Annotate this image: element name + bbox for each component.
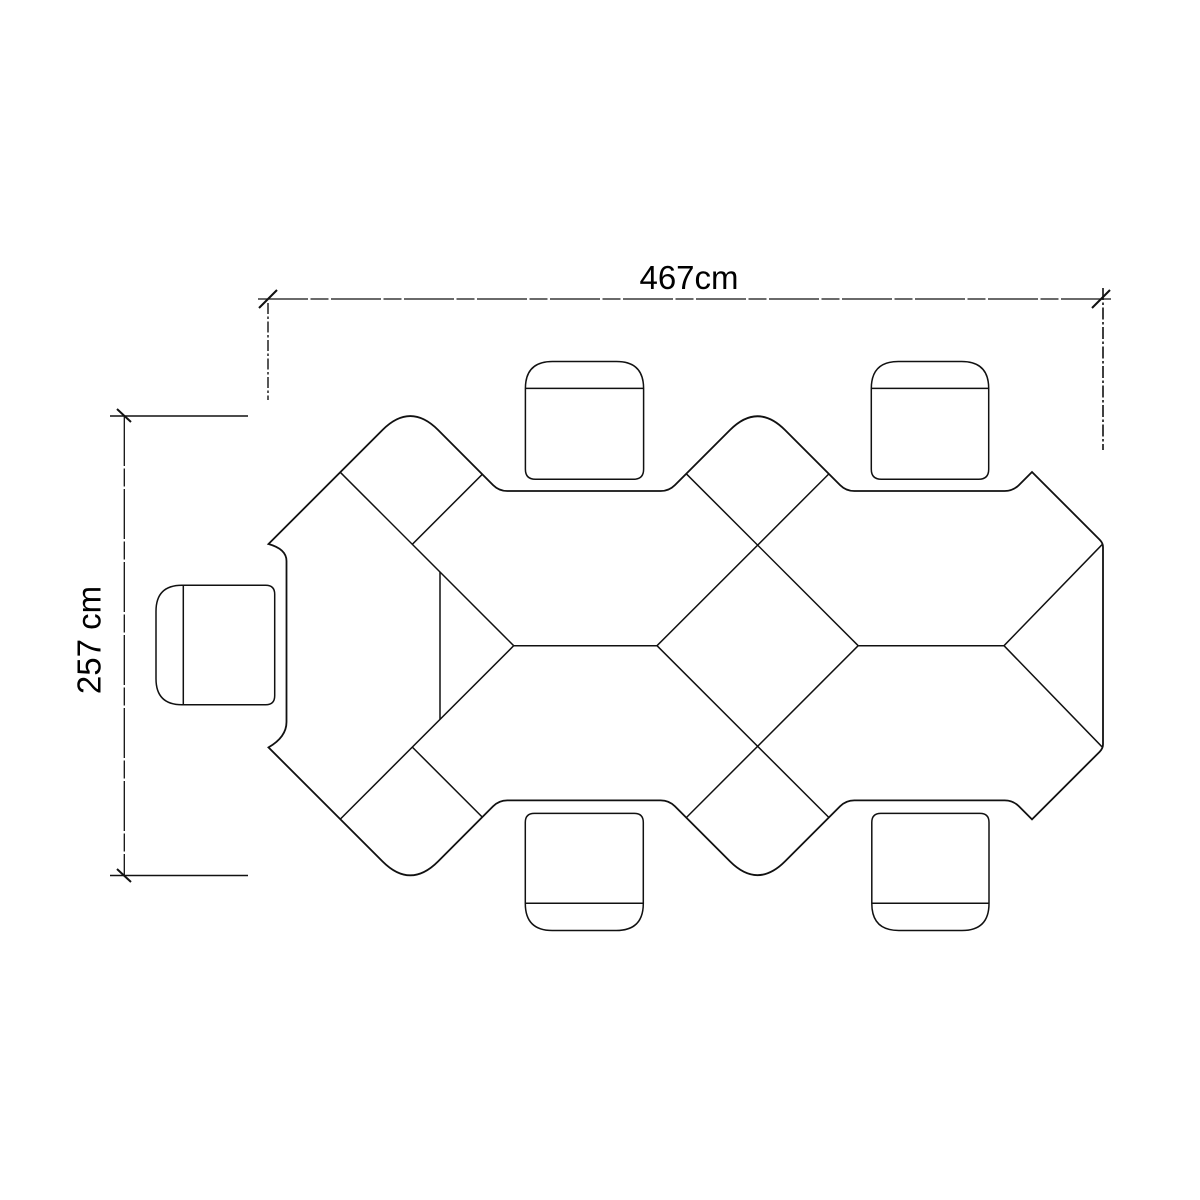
svg-text:257 cm: 257 cm — [71, 586, 108, 694]
svg-text:467cm: 467cm — [639, 259, 738, 296]
